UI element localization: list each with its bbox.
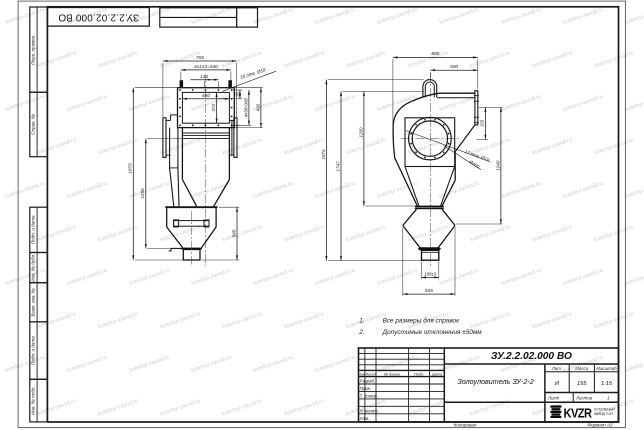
svg-text:Лист: Лист xyxy=(364,371,376,376)
svg-text:kotelnyi-zavod.ru: kotelnyi-zavod.ru xyxy=(36,398,77,417)
svg-text:kotelnyi-zavod.ru: kotelnyi-zavod.ru xyxy=(284,224,325,243)
svg-text:Перв. примен.: Перв. примен. xyxy=(31,34,36,65)
svg-text:kotelnyi-zavod.ru: kotelnyi-zavod.ru xyxy=(129,268,170,287)
svg-text:765: 765 xyxy=(196,55,204,61)
svg-text:kotelnyi-zavod.ru: kotelnyi-zavod.ru xyxy=(98,224,139,243)
svg-text:kotelnyi-zavod.ru: kotelnyi-zavod.ru xyxy=(346,311,387,330)
svg-text:kotelnyi-zavod.ru: kotelnyi-zavod.ru xyxy=(67,268,108,287)
svg-text:370: 370 xyxy=(211,104,216,112)
svg-text:kotelnyi-zavod.ru: kotelnyi-zavod.ru xyxy=(346,224,387,243)
svg-text:ЗУ.2.2.02.000 ВО: ЗУ.2.2.02.000 ВО xyxy=(491,351,572,362)
svg-text:И: И xyxy=(555,381,560,387)
svg-text:1: 1 xyxy=(607,396,610,401)
svg-text:1255: 1255 xyxy=(140,188,145,199)
svg-text:kotelnyi-zavod.ru: kotelnyi-zavod.ru xyxy=(470,50,511,69)
svg-text:ЗАВОД РЭП: ЗАВОД РЭП xyxy=(594,412,614,416)
svg-text:2.: 2. xyxy=(358,329,364,336)
svg-text:180±3: 180±3 xyxy=(424,271,437,276)
svg-text:kotelnyi-zavod.ru: kotelnyi-zavod.ru xyxy=(191,268,232,287)
svg-text:kotelnyi-zavod.ru: kotelnyi-zavod.ru xyxy=(563,268,604,287)
svg-text:155: 155 xyxy=(577,381,587,387)
svg-text:kotelnyi-zavod.ru: kotelnyi-zavod.ru xyxy=(625,355,644,374)
svg-text:kotelnyi-zavod.ru: kotelnyi-zavod.ru xyxy=(36,311,77,330)
svg-text:Масштаб: Масштаб xyxy=(596,366,617,371)
svg-text:4х133=530: 4х133=530 xyxy=(194,64,218,70)
svg-text:Формат А3: Формат А3 xyxy=(587,422,613,427)
svg-text:kotelnyi-zavod.ru: kotelnyi-zavod.ru xyxy=(129,355,170,374)
svg-text:1200: 1200 xyxy=(358,127,363,138)
svg-text:Т. контр.: Т. контр. xyxy=(360,394,379,399)
svg-text:kotelnyi-zavod.ru: kotelnyi-zavod.ru xyxy=(408,398,449,417)
svg-text:430: 430 xyxy=(255,103,260,111)
svg-text:1747: 1747 xyxy=(335,161,340,172)
svg-text:kotelnyi-zavod.ru: kotelnyi-zavod.ru xyxy=(284,398,325,417)
svg-text:KVZR: KVZR xyxy=(564,406,593,421)
svg-text:Справ. №: Справ. № xyxy=(31,114,36,135)
svg-text:545: 545 xyxy=(231,229,236,237)
svg-text:kotelnyi-zavod.ru: kotelnyi-zavod.ru xyxy=(160,398,201,417)
svg-text:kotelnyi-zavod.ru: kotelnyi-zavod.ru xyxy=(532,311,573,330)
svg-text:kotelnyi-zavod.ru: kotelnyi-zavod.ru xyxy=(253,355,294,374)
svg-text:kotelnyi-zavod.ru: kotelnyi-zavod.ru xyxy=(222,224,263,243)
svg-text:1870: 1870 xyxy=(128,163,133,174)
svg-text:kotelnyi-zavod.ru: kotelnyi-zavod.ru xyxy=(36,137,77,156)
svg-text:kotelnyi-zavod.ru: kotelnyi-zavod.ru xyxy=(5,7,46,26)
svg-text:kotelnyi-zavod.ru: kotelnyi-zavod.ru xyxy=(315,268,356,287)
svg-text:kotelnyi-zavod.ru: kotelnyi-zavod.ru xyxy=(439,181,480,200)
svg-text:kotelnyi-zavod.ru: kotelnyi-zavod.ru xyxy=(129,181,170,200)
svg-text:kotelnyi-zavod.ru: kotelnyi-zavod.ru xyxy=(625,94,644,113)
svg-text:kotelnyi-zavod.ru: kotelnyi-zavod.ru xyxy=(439,7,480,26)
svg-text:kotelnyi-zavod.ru: kotelnyi-zavod.ru xyxy=(67,355,108,374)
svg-text:kotelnyi-zavod.ru: kotelnyi-zavod.ru xyxy=(563,181,604,200)
svg-text:kotelnyi-zavod.ru: kotelnyi-zavod.ru xyxy=(346,50,387,69)
svg-text:kotelnyi-zavod.ru: kotelnyi-zavod.ru xyxy=(470,224,511,243)
svg-text:kotelnyi-zavod.ru: kotelnyi-zavod.ru xyxy=(501,268,542,287)
svg-text:kotelnyi-zavod.ru: kotelnyi-zavod.ru xyxy=(377,181,418,200)
svg-text:Подп. и дата: Подп. и дата xyxy=(31,215,36,244)
svg-text:Пров.: Пров. xyxy=(360,386,371,391)
svg-text:4х95=380: 4х95=380 xyxy=(243,98,248,118)
svg-text:kotelnyi-zavod.ru: kotelnyi-zavod.ru xyxy=(222,50,263,69)
svg-text:880: 880 xyxy=(431,51,439,57)
svg-text:kotelnyi-zavod.ru: kotelnyi-zavod.ru xyxy=(36,224,77,243)
svg-text:1240: 1240 xyxy=(495,160,500,171)
svg-text:kotelnyi-zavod.ru: kotelnyi-zavod.ru xyxy=(563,94,604,113)
svg-text:Золоуловитель ЗУ-2-2: Золоуловитель ЗУ-2-2 xyxy=(457,377,533,386)
svg-text:kotelnyi-zavod.ru: kotelnyi-zavod.ru xyxy=(98,311,139,330)
svg-text:kotelnyi-zavod.ru: kotelnyi-zavod.ru xyxy=(470,398,511,417)
svg-text:kotelnyi-zavod.ru: kotelnyi-zavod.ru xyxy=(470,311,511,330)
svg-text:kotelnyi-zavod.ru: kotelnyi-zavod.ru xyxy=(377,94,418,113)
svg-text:kotelnyi-zavod.ru: kotelnyi-zavod.ru xyxy=(5,355,46,374)
svg-text:kotelnyi-zavod.ru: kotelnyi-zavod.ru xyxy=(594,224,635,243)
svg-text:kotelnyi-zavod.ru: kotelnyi-zavod.ru xyxy=(191,7,232,26)
svg-text:95: 95 xyxy=(234,91,239,96)
svg-text:kotelnyi-zavod.ru: kotelnyi-zavod.ru xyxy=(594,311,635,330)
svg-text:kotelnyi-zavod.ru: kotelnyi-zavod.ru xyxy=(253,7,294,26)
svg-text:Дата: Дата xyxy=(431,371,443,376)
svg-text:Инв. № дубл.: Инв. № дубл. xyxy=(31,253,36,281)
svg-text:kotelnyi-zavod.ru: kotelnyi-zavod.ru xyxy=(253,181,294,200)
svg-text:kotelnyi-zavod.ru: kotelnyi-zavod.ru xyxy=(315,355,356,374)
svg-text:kotelnyi-zavod.ru: kotelnyi-zavod.ru xyxy=(284,311,325,330)
svg-text:Н. контр.: Н. контр. xyxy=(360,408,379,413)
svg-text:Подп.: Подп. xyxy=(414,371,424,376)
svg-text:1876: 1876 xyxy=(321,149,326,160)
svg-text:kotelnyi-zavod.ru: kotelnyi-zavod.ru xyxy=(377,268,418,287)
svg-text:kotelnyi-zavod.ru: kotelnyi-zavod.ru xyxy=(284,50,325,69)
svg-text:kotelnyi-zavod.ru: kotelnyi-zavod.ru xyxy=(501,181,542,200)
svg-text:1:15: 1:15 xyxy=(601,381,613,387)
svg-text:kotelnyi-zavod.ru: kotelnyi-zavod.ru xyxy=(129,94,170,113)
svg-text:Лист: Лист xyxy=(547,396,560,401)
svg-text:Ø400: Ø400 xyxy=(468,159,481,170)
svg-text:kotelnyi-zavod.ru: kotelnyi-zavod.ru xyxy=(160,224,201,243)
svg-text:Масса: Масса xyxy=(575,366,589,371)
svg-text:kotelnyi-zavod.ru: kotelnyi-zavod.ru xyxy=(346,137,387,156)
svg-text:kotelnyi-zavod.ru: kotelnyi-zavod.ru xyxy=(98,398,139,417)
svg-text:500: 500 xyxy=(450,64,458,70)
svg-text:kotelnyi-zavod.ru: kotelnyi-zavod.ru xyxy=(501,7,542,26)
svg-text:Инв. № подл.: Инв. № подл. xyxy=(31,386,36,415)
svg-text:kotelnyi-zavod.ru: kotelnyi-zavod.ru xyxy=(222,137,263,156)
svg-text:kotelnyi-zavod.ru: kotelnyi-zavod.ru xyxy=(315,94,356,113)
svg-text:Допустимые отклонения ±50мм: Допустимые отклонения ±50мм xyxy=(382,329,483,336)
svg-text:kotelnyi-zavod.ru: kotelnyi-zavod.ru xyxy=(439,94,480,113)
svg-text:kotelnyi-zavod.ru: kotelnyi-zavod.ru xyxy=(439,268,480,287)
svg-text:16 отв. Ø18: 16 отв. Ø18 xyxy=(239,67,266,80)
svg-text:kotelnyi-zavod.ru: kotelnyi-zavod.ru xyxy=(625,268,644,287)
svg-text:kotelnyi-zavod.ru: kotelnyi-zavod.ru xyxy=(377,7,418,26)
svg-text:kotelnyi-zavod.ru: kotelnyi-zavod.ru xyxy=(532,50,573,69)
svg-text:kotelnyi-zavod.ru: kotelnyi-zavod.ru xyxy=(98,50,139,69)
svg-text:Взам. инв. №: Взам. инв. № xyxy=(31,288,36,316)
svg-text:kotelnyi-zavod.ru: kotelnyi-zavod.ru xyxy=(36,50,77,69)
svg-text:kotelnyi-zavod.ru: kotelnyi-zavod.ru xyxy=(222,311,263,330)
svg-text:kotelnyi-zavod.ru: kotelnyi-zavod.ru xyxy=(160,311,201,330)
svg-text:kotelnyi-zavod.ru: kotelnyi-zavod.ru xyxy=(222,398,263,417)
svg-text:kotelnyi-zavod.ru: kotelnyi-zavod.ru xyxy=(5,268,46,287)
svg-text:kotelnyi-zavod.ru: kotelnyi-zavod.ru xyxy=(284,137,325,156)
svg-text:Листов: Листов xyxy=(575,396,593,401)
svg-text:kotelnyi-zavod.ru: kotelnyi-zavod.ru xyxy=(625,7,644,26)
svg-text:325: 325 xyxy=(480,119,485,127)
svg-text:kotelnyi-zavod.ru: kotelnyi-zavod.ru xyxy=(191,355,232,374)
svg-text:Все размеры для справок: Все размеры для справок xyxy=(383,317,461,325)
svg-text:КОТЕЛЬНЫЙ: КОТЕЛЬНЫЙ xyxy=(594,407,615,411)
svg-text:480: 480 xyxy=(202,93,210,99)
svg-text:kotelnyi-zavod.ru: kotelnyi-zavod.ru xyxy=(625,181,644,200)
svg-text:Утв.: Утв. xyxy=(360,416,370,421)
svg-text:kotelnyi-zavod.ru: kotelnyi-zavod.ru xyxy=(501,94,542,113)
svg-text:1.: 1. xyxy=(359,318,364,325)
svg-text:kotelnyi-zavod.ru: kotelnyi-zavod.ru xyxy=(67,181,108,200)
svg-text:kotelnyi-zavod.ru: kotelnyi-zavod.ru xyxy=(5,94,46,113)
svg-text:kotelnyi-zavod.ru: kotelnyi-zavod.ru xyxy=(408,50,449,69)
svg-text:kotelnyi-zavod.ru: kotelnyi-zavod.ru xyxy=(594,137,635,156)
svg-text:kotelnyi-zavod.ru: kotelnyi-zavod.ru xyxy=(315,181,356,200)
svg-text:Лит.: Лит. xyxy=(551,366,562,371)
svg-text:kotelnyi-zavod.ru: kotelnyi-zavod.ru xyxy=(532,137,573,156)
svg-text:ЗУ.2.2.02.000 ВО: ЗУ.2.2.02.000 ВО xyxy=(58,11,139,22)
svg-text:Разраб.: Разраб. xyxy=(360,379,376,384)
svg-text:kotelnyi-zavod.ru: kotelnyi-zavod.ru xyxy=(594,50,635,69)
svg-text:545: 545 xyxy=(425,288,433,294)
svg-text:kotelnyi-zavod.ru: kotelnyi-zavod.ru xyxy=(253,268,294,287)
svg-text:Подп. и дата: Подп. и дата xyxy=(31,336,36,365)
svg-text:kotelnyi-zavod.ru: kotelnyi-zavod.ru xyxy=(5,181,46,200)
svg-text:kotelnyi-zavod.ru: kotelnyi-zavod.ru xyxy=(563,7,604,26)
svg-text:133: 133 xyxy=(200,74,208,80)
svg-text:kotelnyi-zavod.ru: kotelnyi-zavod.ru xyxy=(98,137,139,156)
svg-text:kotelnyi-zavod.ru: kotelnyi-zavod.ru xyxy=(315,7,356,26)
svg-text:№ докум.: № докум. xyxy=(384,371,401,376)
svg-text:kotelnyi-zavod.ru: kotelnyi-zavod.ru xyxy=(191,181,232,200)
svg-text:Копировал: Копировал xyxy=(454,422,477,427)
svg-text:kotelnyi-zavod.ru: kotelnyi-zavod.ru xyxy=(532,224,573,243)
svg-text:kotelnyi-zavod.ru: kotelnyi-zavod.ru xyxy=(67,94,108,113)
